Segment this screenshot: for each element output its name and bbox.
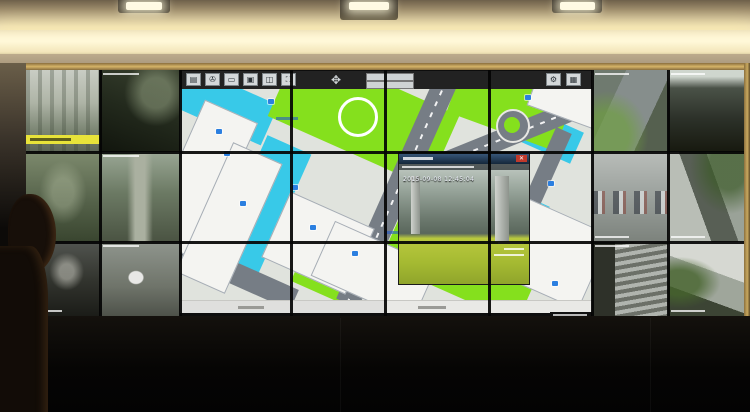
toolbar-button-measure[interactable]: ▭: [224, 73, 239, 86]
light-glow: [560, 2, 595, 10]
camera-feed-7[interactable]: [592, 70, 668, 152]
timestamp-overlay: [595, 245, 629, 247]
popup-timestamp: 2015-09-08 12:45:04: [403, 176, 474, 183]
monitor-bezel: [99, 70, 102, 316]
roundabout-center: [504, 117, 520, 133]
camera-marker[interactable]: [216, 129, 222, 134]
status-text-blur: [418, 306, 446, 309]
popup-camera-name-bar: [399, 164, 529, 170]
camera-marker[interactable]: [552, 281, 558, 286]
toolbar-button-splitview[interactable]: ◫: [262, 73, 277, 86]
light-glow: [126, 2, 162, 10]
pan-dpad-control[interactable]: ✥: [326, 72, 346, 88]
camera-name-blur: [402, 166, 474, 168]
toolbar-button-layers[interactable]: ▤: [186, 73, 201, 86]
light-glow: [349, 2, 390, 10]
hand-silhouette: [0, 186, 62, 412]
camera-feed-10[interactable]: [668, 152, 744, 242]
camera-feed-6[interactable]: [100, 242, 180, 316]
monitor-bezel: [591, 70, 594, 316]
timestamp-overlay: [103, 73, 139, 75]
toolbar-button-settings[interactable]: ⚙: [546, 73, 561, 86]
monitor-bezel: [179, 70, 182, 316]
camera-marker[interactable]: [240, 201, 246, 206]
wall-seam: [650, 318, 651, 412]
recessed-light-fixture: [340, 0, 398, 20]
lawn-circle-path: [338, 97, 378, 137]
monitor-bezel: [667, 70, 670, 316]
live-video-popup[interactable]: 2015-09-08 12:45:04 ✕: [398, 152, 530, 285]
timestamp-overlay: [671, 310, 705, 312]
camera-feed-12[interactable]: [668, 242, 744, 316]
zoom-out-button[interactable]: [366, 81, 414, 89]
camera-marker[interactable]: [352, 251, 358, 256]
toolbar-button-grid[interactable]: ▦: [566, 73, 581, 86]
control-room-photo: ▤ ✇ ▭ ▣ ◫ ⛶ ✥ ⚙ ▦: [0, 0, 750, 412]
recessed-light-fixture: [118, 0, 170, 13]
camera-marker[interactable]: [548, 181, 554, 186]
popup-close-button[interactable]: ✕: [516, 155, 527, 162]
timestamp-overlay: [671, 236, 705, 238]
status-text-blur: [238, 306, 264, 309]
room-lower-area: [0, 316, 750, 412]
monitor-bezel: [384, 70, 387, 316]
recessed-light-fixture: [552, 0, 602, 13]
zoom-in-button[interactable]: [366, 73, 414, 81]
camera-marker[interactable]: [268, 99, 274, 104]
monitor-bezel: [26, 241, 744, 244]
toolbar-button-camera[interactable]: ▣: [243, 73, 258, 86]
arm-shape: [0, 246, 48, 412]
camera-feed-1[interactable]: [26, 70, 100, 152]
timestamp-overlay: [595, 73, 629, 75]
alert-text-blur: [30, 138, 71, 141]
osd-text-blur: [494, 254, 524, 256]
toolbar-button-rotate[interactable]: ✇: [205, 73, 220, 86]
wall-frame-right: [744, 63, 750, 318]
camera-feed-9[interactable]: [592, 152, 668, 242]
map-label-blur: [276, 117, 298, 120]
video-wall: ▤ ✇ ▭ ▣ ◫ ⛶ ✥ ⚙ ▦: [26, 70, 744, 316]
timestamp-overlay: [671, 73, 705, 75]
status-segment: [180, 301, 385, 313]
timestamp-overlay: [595, 236, 629, 238]
monitor-bezel: [290, 70, 293, 316]
monitor-bezel: [26, 151, 744, 154]
camera-feed-8[interactable]: [668, 70, 744, 152]
popup-video-frame: 2015-09-08 12:45:04: [399, 164, 529, 284]
camera-feed-11[interactable]: [592, 242, 668, 316]
popup-title-bar[interactable]: ✕: [399, 153, 529, 164]
timestamp-overlay: [103, 245, 139, 247]
cove-light-strip: [0, 30, 750, 56]
popup-title-text-blur: [403, 157, 433, 160]
camera-marker[interactable]: [310, 225, 316, 230]
wall-seam: [340, 318, 341, 412]
camera-marker[interactable]: [525, 95, 531, 100]
camera-feed-2[interactable]: [100, 70, 180, 152]
osd-text-blur: [504, 248, 524, 250]
camera-feed-4[interactable]: [100, 152, 180, 242]
monitor-bezel: [488, 70, 491, 316]
toolbar-button-fullscreen[interactable]: ⛶: [281, 73, 296, 86]
gate-pillar: [411, 176, 420, 234]
gate-pillar: [495, 176, 509, 242]
timestamp-overlay: [103, 155, 139, 157]
alert-highlight-bar: [26, 135, 100, 144]
